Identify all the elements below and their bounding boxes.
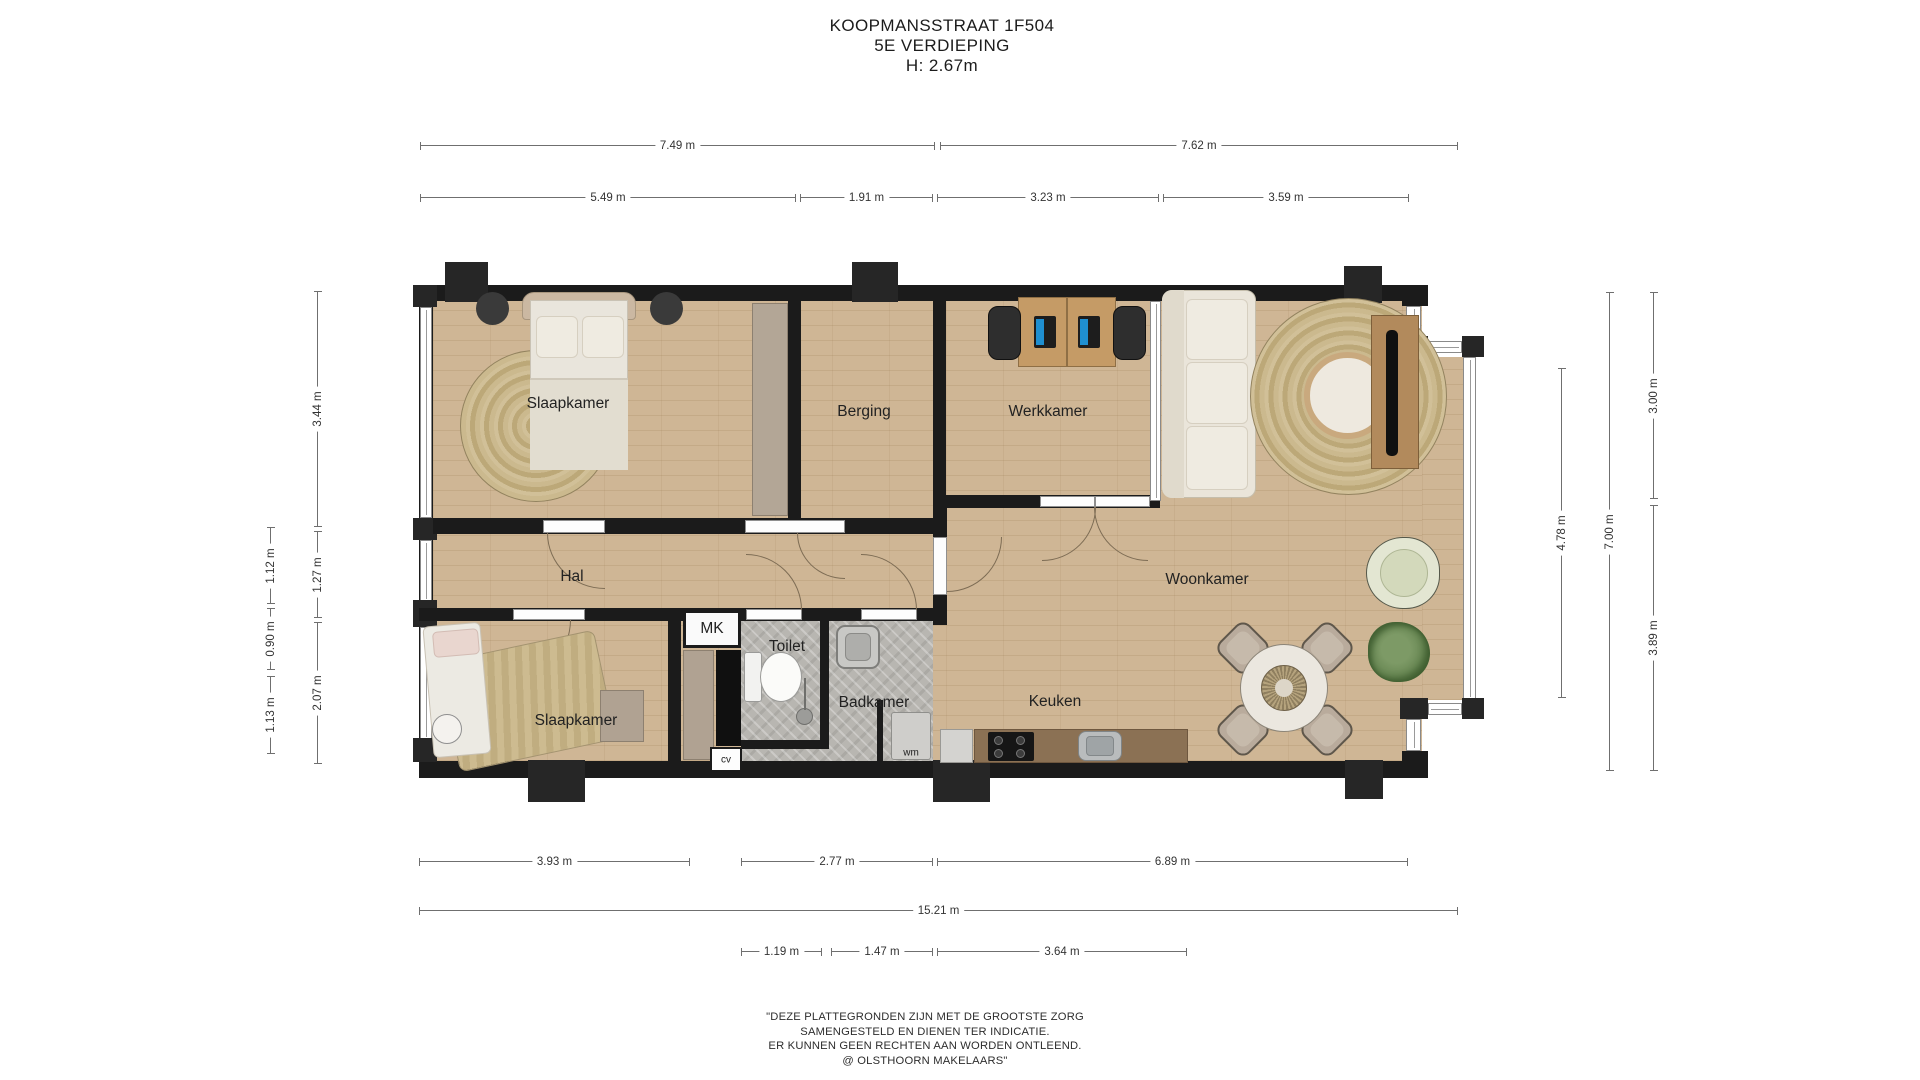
wall-right-top-corner bbox=[1402, 285, 1428, 306]
bathroom-sink-basin bbox=[845, 633, 871, 661]
dining-centerpiece-core bbox=[1275, 679, 1293, 697]
disclaimer-line-1: "DEZE PLATTEGRONDEN ZIJN MET DE GROOTSTE… bbox=[625, 1010, 1225, 1025]
disclaimer-line-4: @ OLSTHOORN MAKELAARS" bbox=[625, 1054, 1225, 1069]
stove-burner-3 bbox=[994, 749, 1003, 758]
laptop-left-screen bbox=[1036, 319, 1044, 345]
closet-wardrobe bbox=[683, 650, 714, 760]
dim-bottom-1521: 15.21 m bbox=[419, 910, 1458, 911]
door-bedroom2 bbox=[513, 609, 585, 620]
disclaimer-text: "DEZE PLATTEGRONDEN ZIJN MET DE GROOTSTE… bbox=[625, 1010, 1225, 1068]
pillar-bay-bottom-outer bbox=[1462, 698, 1484, 719]
title-height: H: 2.67m bbox=[642, 56, 1242, 76]
sofa-cushion-1 bbox=[1186, 299, 1248, 360]
room-label-slaapkamer-1: Slaapkamer bbox=[527, 395, 610, 413]
dim-top-359: 3.59 m bbox=[1163, 197, 1409, 198]
desk-divider bbox=[1066, 297, 1068, 367]
tv-screen bbox=[1386, 330, 1398, 456]
pillar-bay-bottom-inner bbox=[1400, 698, 1428, 719]
glass-wall-werkkamer bbox=[1150, 301, 1161, 501]
stove-burner-4 bbox=[1016, 749, 1025, 758]
dim-top-323: 3.23 m bbox=[937, 197, 1159, 198]
pillow-left bbox=[536, 316, 578, 358]
floorplan-page: KOOPMANSSTRAAT 1F504 5E VERDIEPING H: 2.… bbox=[0, 0, 1920, 1080]
wall-berging-werkkamer bbox=[933, 301, 946, 518]
shower-hose bbox=[804, 678, 806, 710]
kitchen-sink-basin bbox=[1086, 736, 1114, 756]
window-bay-glazing bbox=[1463, 357, 1476, 700]
sofa-back bbox=[1162, 290, 1184, 498]
dim-bottom-119: 1.19 m bbox=[741, 951, 822, 952]
room-label-berging: Berging bbox=[837, 403, 890, 421]
office-chair-right bbox=[1113, 306, 1146, 360]
pillar-bottom-3 bbox=[1345, 760, 1383, 799]
door-berging bbox=[745, 520, 845, 533]
dim-bottom-393: 3.93 m bbox=[419, 861, 690, 862]
dim-left-344: 3.44 m bbox=[317, 291, 318, 527]
wall-bedroom1-berging bbox=[788, 301, 801, 518]
disclaimer-line-3: ER KUNNEN GEEN RECHTEN AAN WORDEN ONTLEE… bbox=[625, 1039, 1225, 1054]
title-floor: 5E VERDIEPING bbox=[642, 36, 1242, 56]
bed-single-pillow bbox=[432, 628, 480, 658]
shower-head bbox=[796, 708, 813, 725]
wall-hal-north bbox=[433, 518, 947, 534]
dim-top-191: 1.91 m bbox=[800, 197, 933, 198]
stove-burner-2 bbox=[1016, 736, 1025, 745]
sofa-cushion-3 bbox=[1186, 426, 1248, 490]
closet-black bbox=[716, 650, 741, 746]
armchair-seat bbox=[1380, 549, 1428, 597]
laptop-right-screen bbox=[1080, 319, 1088, 345]
dim-right-389: 3.89 m bbox=[1653, 505, 1654, 771]
dim-top-749: 7.49 m bbox=[420, 145, 935, 146]
nightstand-left bbox=[476, 292, 509, 325]
wardrobe-bedroom1 bbox=[752, 303, 788, 516]
kitchen-appliance bbox=[940, 729, 973, 763]
title-address: KOOPMANSSTRAAT 1F504 bbox=[642, 16, 1242, 36]
sofa-cushion-2 bbox=[1186, 362, 1248, 424]
pillar-top-2 bbox=[852, 262, 898, 302]
door-woonkamer bbox=[933, 537, 947, 595]
dim-bottom-689: 6.89 m bbox=[937, 861, 1408, 862]
door-werkkamer-left bbox=[1040, 496, 1095, 507]
wall-right-bottom-corner bbox=[1402, 751, 1428, 773]
window-right-bottom bbox=[1406, 719, 1421, 751]
dim-bottom-277: 2.77 m bbox=[741, 861, 933, 862]
toilet-bowl bbox=[760, 652, 802, 702]
wall-bedroom2-east bbox=[668, 608, 681, 761]
room-label-woonkamer: Woonkamer bbox=[1165, 571, 1248, 589]
window-left-hal bbox=[420, 540, 432, 602]
door-werkkamer-right bbox=[1095, 496, 1150, 507]
window-left-bedroom1 bbox=[420, 307, 432, 518]
stove-burner-1 bbox=[994, 736, 1003, 745]
room-label-werkkamer: Werkkamer bbox=[1009, 403, 1088, 421]
dim-right-478: 4.78 m bbox=[1561, 368, 1562, 698]
window-bay-bottom bbox=[1428, 703, 1462, 715]
nightstand-right bbox=[650, 292, 683, 325]
pillar-bottom-1 bbox=[528, 760, 585, 802]
room-label-hal: Hal bbox=[560, 568, 583, 586]
room-label-keuken: Keuken bbox=[1029, 693, 1082, 711]
door-badkamer bbox=[861, 609, 917, 620]
disclaimer-line-2: SAMENGESTELD EN DIENEN TER INDICATIE. bbox=[625, 1025, 1225, 1040]
dim-top-549: 5.49 m bbox=[420, 197, 796, 198]
dim-left-090: 0.90 m bbox=[270, 608, 271, 670]
room-label-slaapkamer-2: Slaapkamer bbox=[535, 712, 618, 730]
wall-toilet-south bbox=[741, 740, 829, 749]
plant bbox=[1368, 622, 1430, 682]
side-table-lamp bbox=[432, 714, 462, 744]
page-title: KOOPMANSSTRAAT 1F504 5E VERDIEPING H: 2.… bbox=[642, 16, 1242, 76]
dim-top-762: 7.62 m bbox=[940, 145, 1458, 146]
dim-left-207: 2.07 m bbox=[317, 622, 318, 764]
dim-bottom-364: 3.64 m bbox=[937, 951, 1187, 952]
room-label-toilet: Toilet bbox=[769, 638, 805, 656]
office-chair-left bbox=[988, 306, 1021, 360]
wall-toilet-badkamer bbox=[820, 621, 829, 743]
pillar-bay-top-outer bbox=[1462, 336, 1484, 357]
dim-left-127: 1.27 m bbox=[317, 531, 318, 618]
dim-left-112: 1.12 m bbox=[270, 527, 271, 604]
door-toilet bbox=[746, 609, 802, 620]
pillar-bottom-2 bbox=[933, 760, 990, 802]
pillar-left-1 bbox=[413, 285, 437, 307]
room-label-mk: MK bbox=[700, 620, 723, 638]
dim-right-300: 3.00 m bbox=[1653, 292, 1654, 499]
dim-left-113: 1.13 m bbox=[270, 676, 271, 754]
room-label-badkamer: Badkamer bbox=[839, 694, 910, 712]
label-wm: wm bbox=[903, 748, 919, 759]
label-cv: cv bbox=[721, 755, 731, 766]
dim-bottom-147: 1.47 m bbox=[831, 951, 933, 952]
dim-right-700: 7.00 m bbox=[1609, 292, 1610, 771]
door-bedroom1 bbox=[543, 520, 605, 533]
bed-double-duvet bbox=[530, 378, 628, 470]
pillow-right bbox=[582, 316, 624, 358]
